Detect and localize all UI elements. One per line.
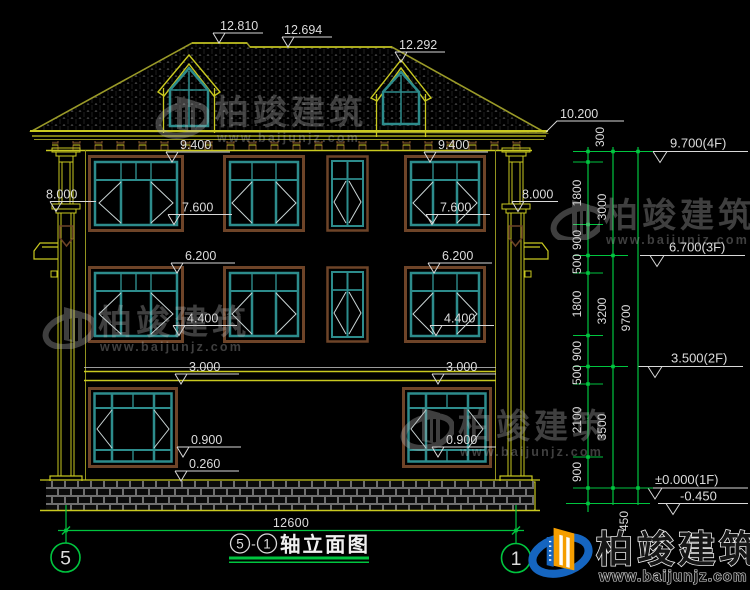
cad-elevation-drawing: 12.810 12.694 12.292 10.200 8.000 8.000 … (0, 0, 750, 590)
brand-url: www.baijunjz.com (598, 568, 748, 585)
dim-label: 10.200 (560, 107, 598, 121)
dim-label: 8.000 (522, 188, 553, 202)
dim-label: 9.400 (438, 138, 469, 152)
dim-label: 450 (617, 511, 631, 531)
watermark: 柏竣建筑 www.baijunjz.com (42, 303, 250, 354)
dim-label: 0.900 (191, 433, 222, 447)
watermark-brand: 柏竣建筑 (604, 196, 750, 235)
brand-logo: 柏竣建筑 www.baijunjz.com (528, 528, 750, 585)
elevation-canvas: 12.810 12.694 12.292 10.200 8.000 8.000 … (0, 0, 750, 590)
dim-label: 300 (593, 127, 607, 147)
dim-label: 3.000 (189, 360, 220, 374)
window-3f-3 (328, 157, 368, 231)
mark-0260: 0.260 (175, 457, 239, 481)
watermark: 柏竣建筑 www.baijunjz.com (550, 196, 750, 247)
watermark-url: www.baijunjz.com (605, 233, 749, 247)
pilaster-left (34, 148, 85, 510)
mark-eave: 10.200 (546, 107, 624, 132)
watermark-brand: 柏竣建筑 (98, 303, 250, 342)
title-underline (229, 557, 369, 560)
drawing-title: 5 - 1 轴立面图 (229, 533, 370, 564)
window-2f-4 (406, 268, 485, 342)
dim-label: 500 (570, 365, 584, 385)
title-underline-2 (229, 562, 369, 564)
axis-bubble-5: 5 (51, 543, 80, 572)
dim-label: 900 (570, 462, 584, 482)
marker-2f: 3.500(2F) (638, 351, 743, 378)
window-3f-2 (225, 157, 304, 231)
window-3f-1 (90, 157, 183, 231)
overall-width-label: 12600 (273, 516, 309, 530)
dim-label: 12.292 (399, 38, 437, 52)
axis-number: 1 (511, 548, 522, 570)
floor-level-markers: 9.700(4F) 6.700(3F) 3.500(2F) ±0.000(1F)… (638, 136, 748, 515)
level-label: -0.450 (680, 489, 717, 504)
watermark-brand: 柏竣建筑 (458, 407, 610, 446)
level-label: 3.500(2F) (671, 351, 727, 366)
brand-name: 柏竣建筑 (596, 528, 750, 570)
dim-label: 4.400 (444, 312, 475, 326)
dim-label: 3.000 (446, 360, 477, 374)
chain-labels: 300 1800 900 500 1800 900 500 2100 900 3… (570, 127, 633, 531)
dim-label: 6.200 (442, 249, 473, 263)
dim-label: 3200 (595, 297, 609, 324)
mark-ridge-low: 12.694 (282, 23, 332, 47)
dim-label: 7.600 (440, 201, 471, 215)
title-axis-to: 1 (263, 537, 271, 552)
level-label: 9.700(4F) (670, 136, 726, 151)
axis-number: 5 (60, 548, 71, 570)
dim-label: 500 (570, 254, 584, 274)
marker-ground: -0.450 (658, 489, 748, 515)
dimension-chains: 300 1800 900 500 1800 900 500 2100 900 3… (566, 127, 653, 531)
dim-label: 12.694 (284, 23, 322, 37)
axis-bubble-1: 1 (502, 544, 531, 573)
watermark-url: www.baijunjz.com (216, 131, 360, 145)
title-sep: - (251, 536, 256, 552)
mark-8000-right: 8.000 (512, 188, 558, 212)
dim-label: 8.000 (46, 188, 77, 202)
window-1f-1 (90, 389, 177, 467)
dim-label: 1800 (570, 290, 584, 317)
column-bracket (34, 243, 58, 259)
dim-label: 0.260 (189, 457, 220, 471)
mark-ridge-main: 12.810 (213, 19, 263, 43)
title-text: 轴立面图 (280, 533, 370, 557)
level-label: ±0.000(1F) (655, 472, 719, 487)
brand-logo-icon (528, 528, 593, 580)
watermark: 柏竣建筑 www.baijunjz.com (400, 407, 610, 459)
marker-4f: 9.700(4F) (643, 136, 748, 163)
plinth-base (40, 480, 540, 511)
mark-6200-r: 6.200 (428, 249, 492, 273)
column-bracket (524, 243, 548, 259)
window-3f-4 (406, 157, 485, 231)
title-axis-from: 5 (236, 537, 244, 552)
dim-label: 900 (570, 341, 584, 361)
dim-label: 9.400 (180, 138, 211, 152)
dim-label: 6.200 (185, 249, 216, 263)
plinth-masonry (46, 481, 534, 510)
watermark: 柏竣建筑 www.baijunjz.com (155, 93, 367, 145)
window-2f-3 (328, 268, 368, 342)
mark-0900-l: 0.900 (177, 433, 241, 457)
dim-label: 9700 (619, 304, 633, 331)
dim-label: 12.810 (220, 19, 258, 33)
windows-floor3 (90, 157, 485, 231)
watermark-brand: 柏竣建筑 (215, 93, 367, 132)
watermark-url: www.baijunjz.com (459, 445, 603, 459)
dim-label: 7.600 (182, 201, 213, 215)
watermark-url: www.baijunjz.com (99, 340, 243, 354)
